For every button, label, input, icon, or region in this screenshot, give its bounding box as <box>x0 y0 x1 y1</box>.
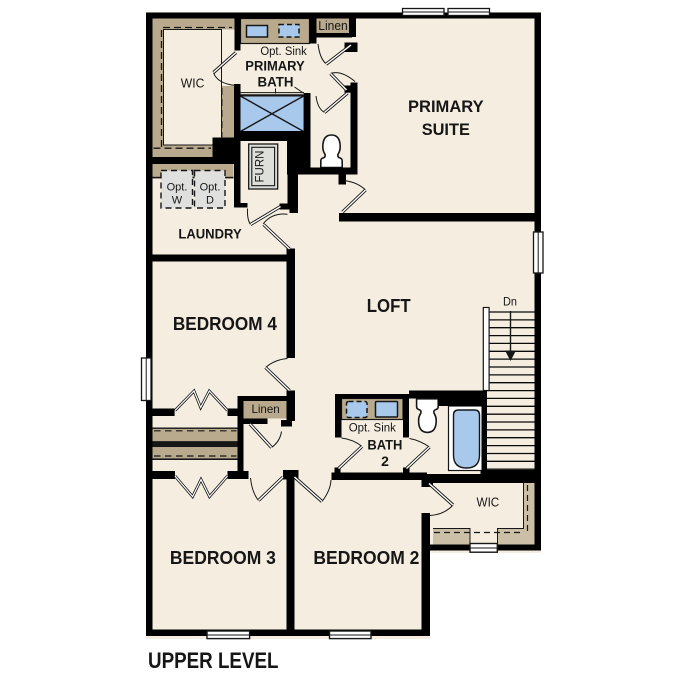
svg-text:LAUNDRY: LAUNDRY <box>178 225 242 241</box>
svg-text:Linen: Linen <box>251 402 279 416</box>
svg-text:BATH: BATH <box>258 74 294 89</box>
svg-text:UPPER LEVEL: UPPER LEVEL <box>148 648 279 673</box>
svg-text:PRIMARY: PRIMARY <box>245 59 304 74</box>
svg-text:BEDROOM 4: BEDROOM 4 <box>173 314 277 334</box>
svg-text:Dn: Dn <box>503 295 517 309</box>
svg-text:BEDROOM 3: BEDROOM 3 <box>170 548 276 568</box>
svg-text:D: D <box>206 195 214 207</box>
svg-text:Opt.: Opt. <box>200 182 221 194</box>
svg-text:SUITE: SUITE <box>422 120 470 139</box>
svg-text:WIC: WIC <box>181 77 205 91</box>
svg-text:BEDROOM 2: BEDROOM 2 <box>313 548 419 568</box>
svg-text:LOFT: LOFT <box>367 296 411 316</box>
svg-text:FURN: FURN <box>255 151 267 183</box>
svg-text:W: W <box>172 195 183 207</box>
svg-text:2: 2 <box>381 453 389 469</box>
svg-text:Linen: Linen <box>318 19 348 33</box>
svg-text:PRIMARY: PRIMARY <box>408 97 484 116</box>
svg-text:BATH: BATH <box>367 437 402 453</box>
svg-text:Opt. Sink: Opt. Sink <box>260 46 307 58</box>
svg-text:Opt. Sink: Opt. Sink <box>349 423 396 435</box>
svg-text:WIC: WIC <box>477 496 500 510</box>
svg-text:Opt.: Opt. <box>167 182 188 194</box>
